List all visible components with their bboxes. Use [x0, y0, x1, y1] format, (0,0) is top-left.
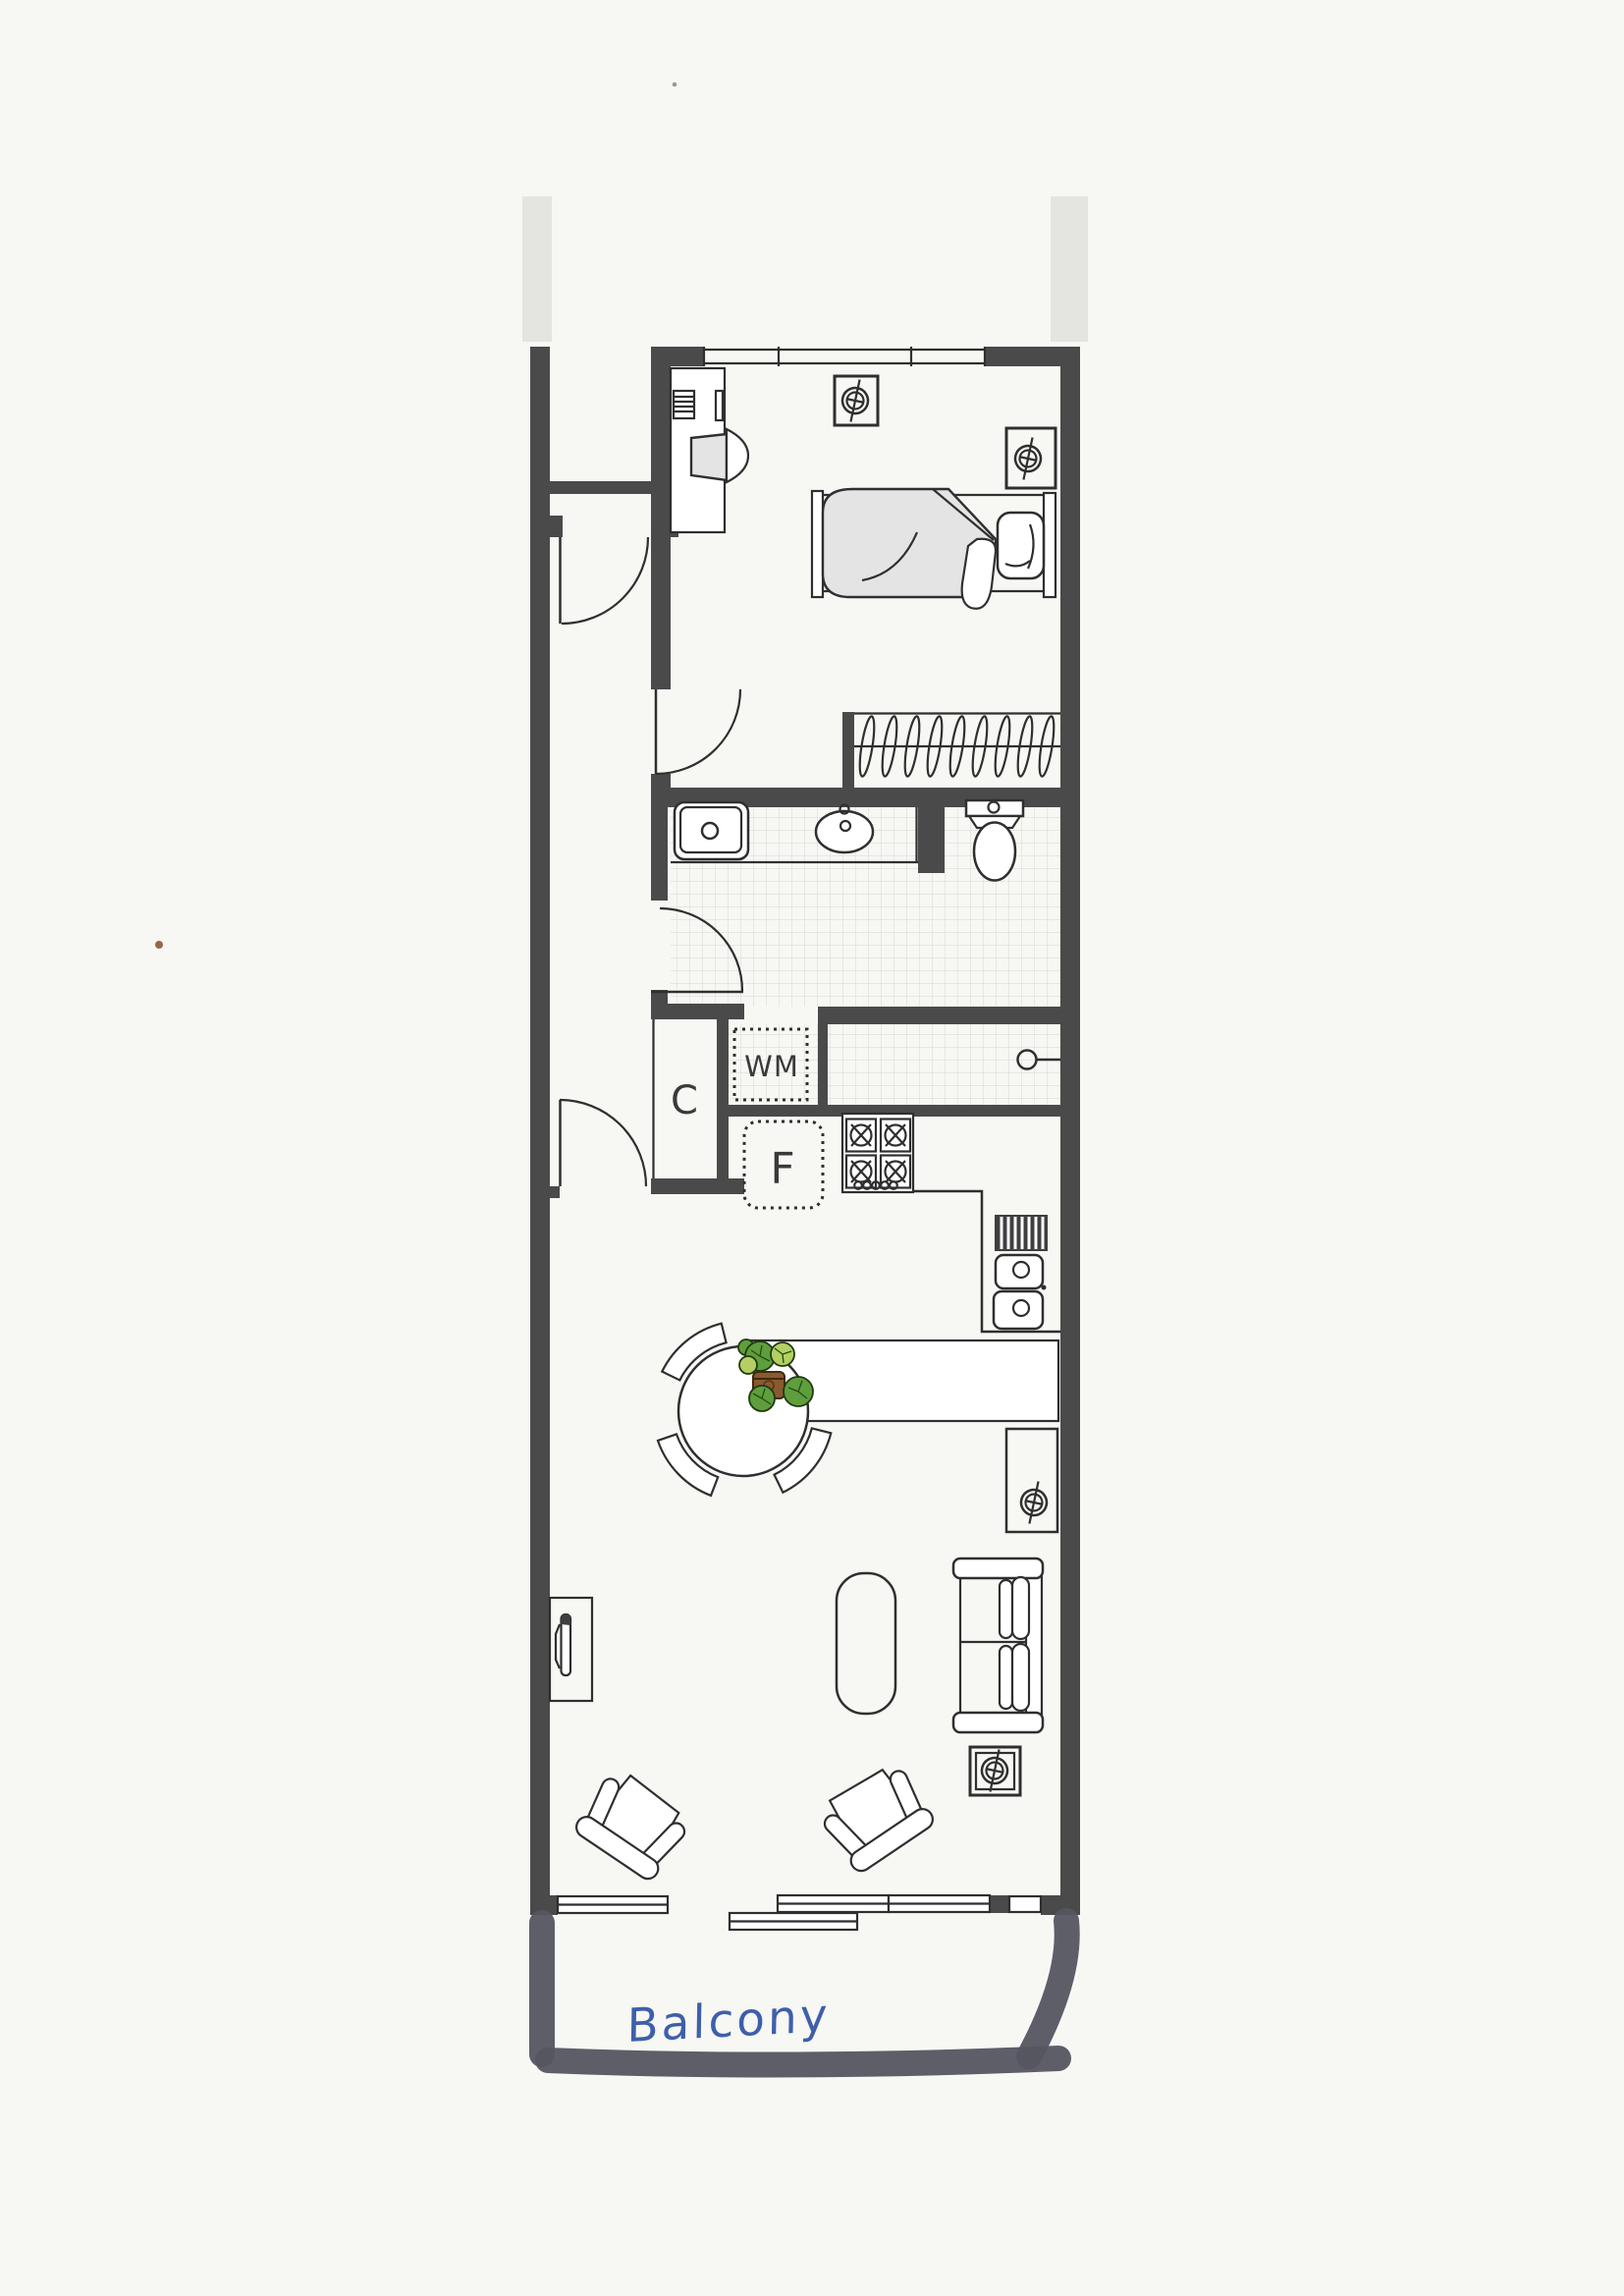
wall-segment [842, 712, 854, 789]
armchair-icon [813, 1757, 938, 1877]
ceiling-light-icon [839, 377, 873, 424]
living-room-door [560, 1100, 646, 1186]
ceiling-light-icon [1017, 1479, 1052, 1526]
desk-chair [691, 429, 748, 482]
bedroom-ceiling-light-b [1006, 428, 1056, 488]
wall-segment [918, 800, 945, 873]
wall-segment [1060, 347, 1080, 1915]
wall-segment [828, 1007, 1080, 1024]
wall-segment [651, 1178, 744, 1194]
duvet-fold [962, 539, 996, 609]
washing-machine-label: WM [744, 1050, 799, 1083]
closet-label: C [671, 1078, 698, 1123]
door-swing-icon [562, 537, 648, 624]
wall-segment [717, 1019, 729, 1186]
fridge-label: F [770, 1144, 794, 1194]
bed-head-board [1044, 493, 1056, 597]
floor-light [970, 1747, 1020, 1795]
kitchen-double-sink [994, 1255, 1047, 1329]
wall-segment [548, 481, 665, 494]
wall-segment [651, 347, 671, 537]
sink-icon [996, 1255, 1043, 1288]
wardrobe [854, 714, 1060, 778]
door-swing-icon [656, 689, 740, 774]
bedroom-door [656, 689, 740, 774]
entry-door [561, 537, 649, 624]
ceiling-light-icon [1011, 435, 1046, 482]
walls [530, 347, 1080, 1915]
sofa-armrest [953, 1558, 1043, 1578]
wall-segment [548, 1186, 560, 1198]
bed-foot-board [812, 491, 823, 597]
side-table-lamp [1006, 1429, 1057, 1532]
sliding-doors [558, 1895, 1041, 1930]
pillow [998, 513, 1044, 578]
bed [812, 489, 1056, 609]
tv-unit [550, 1598, 592, 1701]
wall-segment [548, 516, 563, 537]
wall-segment [985, 347, 1080, 366]
door-swing-icon [560, 1100, 646, 1186]
stove [842, 1114, 913, 1192]
wall-segment [651, 537, 671, 689]
keyboard-icon [674, 391, 694, 418]
wall-segment [990, 1895, 1009, 1913]
wall-segment [651, 1004, 744, 1019]
drainer [995, 1215, 1048, 1251]
sink-icon [994, 1291, 1043, 1329]
bedroom-window [704, 347, 985, 366]
balcony-label: Balcony [626, 1989, 831, 2053]
sofa [953, 1558, 1043, 1732]
wall-segment [651, 807, 668, 901]
bedroom-ceiling-light-a [835, 376, 878, 425]
scanned-floorplan-sheet: C WM F Balcony [0, 0, 1624, 2296]
sofa-armrest [953, 1713, 1043, 1732]
wall-segment [530, 347, 550, 1915]
wall-segment [818, 1007, 828, 1108]
coffee-table [837, 1573, 895, 1714]
armchair-icon [570, 1765, 695, 1885]
monitor-icon [716, 391, 723, 420]
floorplan-drawing [0, 0, 1624, 2296]
